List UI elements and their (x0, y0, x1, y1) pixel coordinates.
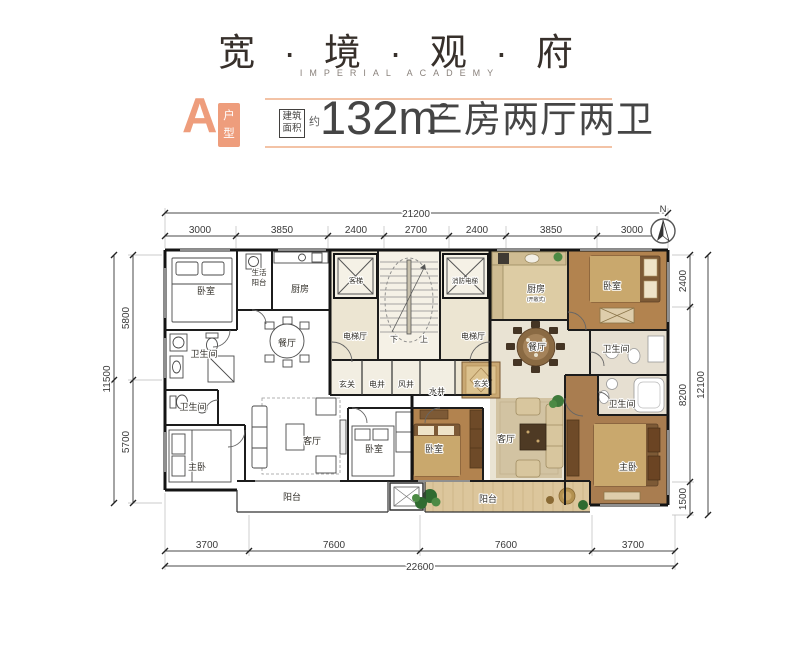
dim-left-2: 5700 (121, 430, 132, 453)
label-left-bath2: 卫生间 (179, 401, 206, 412)
dim-right-3: 1500 (678, 487, 689, 510)
dim-bottom-total: 22600 (406, 562, 434, 573)
floor-plan: 21200 3000 3850 2400 2700 2400 3850 3000… (100, 190, 720, 590)
dim-right-2: 8200 (678, 383, 689, 406)
label-right-living: 客厅 (497, 433, 515, 444)
label-right-bath2: 卫生间 (608, 398, 635, 409)
label-passenger-lift: 客梯 (349, 276, 363, 285)
floorplan-page: 宽 · 境 · 观 · 府 IMPERIAL ACADEMY A 户型 建筑面积… (0, 0, 800, 653)
dim-right-1: 2400 (678, 269, 689, 292)
label-right-dining: 餐厅 (528, 341, 546, 352)
label-left-bath1: 卫生间 (190, 348, 217, 359)
elevator-passenger (334, 254, 377, 298)
north-compass-icon: N (651, 204, 675, 243)
dim-top-7: 3000 (621, 225, 644, 236)
dim-left-total: 11500 (102, 365, 113, 393)
dim-top-3: 2400 (345, 225, 368, 236)
area-number: 132m (320, 91, 438, 144)
label-left-kitchen: 厨房 (291, 283, 309, 294)
label-left-master: 主卧 (188, 461, 206, 472)
dim-top-6: 3850 (540, 225, 563, 236)
dim-top-5: 2400 (466, 225, 489, 236)
unit-type-badge: 户型 (218, 103, 240, 147)
label-right-bedroom2: 卧室 (425, 443, 443, 454)
dim-left-1: 5800 (121, 306, 132, 329)
dim-bottom-3: 7600 (495, 540, 518, 551)
label-right-kitchen: 厨房 (527, 283, 545, 294)
label-right-lift-hall: 电梯厅 (461, 331, 485, 341)
divider-bottom (265, 146, 612, 148)
label-right-balcony: 阳台 (479, 493, 497, 504)
label-stair-up: 上 (420, 335, 428, 344)
north-label: N (660, 204, 667, 215)
dim-bottom-2: 7600 (323, 540, 346, 551)
elevator-fire (443, 254, 488, 298)
label-left-bedroom1: 卧室 (197, 285, 215, 296)
label-left-bedroom2: 卧室 (365, 443, 383, 454)
approx-label: 约 (309, 113, 320, 129)
unit-letter: A (182, 92, 217, 141)
dim-top-total: 21200 (402, 209, 430, 220)
label-right-foyer: 玄关 (474, 378, 489, 388)
label-shaft-electric: 电井 (369, 379, 385, 389)
label-shaft-water: 水井 (429, 386, 445, 396)
label-right-bath1: 卫生间 (602, 343, 629, 354)
label-left-living: 客厅 (303, 435, 321, 446)
label-left-life-balcony-1: 生活 (252, 267, 267, 277)
label-right-kitchen-note: (开敞式) (527, 296, 546, 303)
label-left-balcony: 阳台 (283, 491, 301, 502)
area-label-box: 建筑面积 (279, 109, 305, 138)
label-stair-down: 下 (390, 335, 398, 344)
dim-bottom-1: 3700 (196, 540, 219, 551)
dim-top-4: 2700 (405, 225, 428, 236)
label-left-dining: 餐厅 (278, 337, 296, 348)
label-right-master: 主卧 (619, 461, 637, 472)
label-shaft-wind: 风井 (398, 379, 414, 389)
label-right-bedroom1: 卧室 (603, 280, 621, 291)
label-left-life-balcony-2: 阳台 (252, 277, 267, 287)
dim-top-2: 3850 (271, 225, 294, 236)
label-left-foyer: 玄关 (339, 379, 355, 389)
unit-description: 三房两厅两卫 (426, 100, 654, 141)
dim-bottom-4: 3700 (622, 540, 645, 551)
dim-right-total: 12100 (696, 371, 707, 399)
label-fire-lift: 消防电梯 (452, 276, 479, 285)
label-left-lift-hall: 电梯厅 (343, 331, 367, 341)
page-subtitle: IMPERIAL ACADEMY (0, 68, 800, 78)
dim-top-1: 3000 (189, 225, 212, 236)
